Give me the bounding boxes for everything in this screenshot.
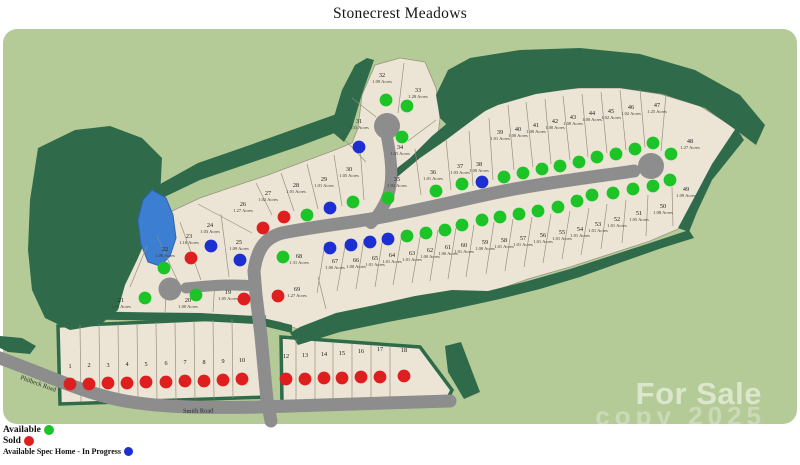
lot-status-dot <box>277 251 290 264</box>
lot-acres: 1.00 Acres <box>582 117 602 122</box>
lot-status-dot <box>664 174 677 187</box>
lot-number: 49 <box>683 186 689 193</box>
lot-status-dot <box>536 163 549 176</box>
lot-acres: 1.02 Acres <box>621 111 641 116</box>
lot-number: 34 <box>397 144 403 151</box>
lot-number: 44 <box>589 110 595 117</box>
lot-number: 29 <box>321 176 327 183</box>
lot-acres: 1.31 Acres <box>289 260 309 265</box>
lot-number: 55 <box>559 229 565 236</box>
lot-number: 66 <box>353 257 359 264</box>
lot-number: 4 <box>125 361 128 368</box>
lot-number: 67 <box>332 258 338 265</box>
lot-number: 18 <box>401 347 407 354</box>
watermark-partial: copy 2025 <box>500 403 800 424</box>
lot-acres: 1.01 Acres <box>588 228 608 233</box>
cul-de-sac-east <box>638 153 664 179</box>
lot-number: 32 <box>379 72 385 79</box>
lot-number: 62 <box>427 247 433 254</box>
lot-status-dot <box>190 289 203 302</box>
lot-number: 36 <box>430 169 436 176</box>
lot-status-dot <box>456 178 469 191</box>
lot-acres: 1.05 Acres <box>339 173 359 178</box>
lot-status-dot <box>396 131 409 144</box>
lot-number: 64 <box>389 252 395 259</box>
lot-status-dot <box>647 137 660 150</box>
lot-acres: 1.00 Acres <box>325 265 345 270</box>
watermark: For Sale copy 2025 <box>500 378 800 424</box>
lot-acres: 1.10 Acres <box>179 240 199 245</box>
legend: Available Sold Available Spec Home - In … <box>3 424 133 457</box>
lot-status-dot <box>498 171 511 184</box>
lot-acres: 1.05 Acres <box>629 217 649 222</box>
lot-number: 13 <box>302 352 308 359</box>
lot-acres: 1.00 Acres <box>526 129 546 134</box>
lot-status-dot <box>257 222 270 235</box>
lot-acres: 1.01 Acres <box>365 262 385 267</box>
legend-dot-sold <box>24 436 34 446</box>
lot-status-dot <box>401 230 414 243</box>
lot-status-dot <box>532 205 545 218</box>
lot-number: 8 <box>202 359 205 366</box>
lot-number: 27 <box>265 190 271 197</box>
lot-status-dot <box>102 377 115 390</box>
lot-status-dot <box>591 151 604 164</box>
lot-status-dot <box>299 373 312 386</box>
lot-number: 61 <box>445 244 451 251</box>
lot-acres: 1.00 Acres <box>438 251 458 256</box>
lot-number: 16 <box>358 348 364 355</box>
lot-status-dot <box>234 254 247 267</box>
lot-number: 46 <box>628 104 634 111</box>
lot-acres: 1.25 Acres <box>647 109 667 114</box>
lot-status-dot <box>198 375 211 388</box>
lot-status-dot <box>345 239 358 252</box>
lot-number: 42 <box>552 118 558 125</box>
lot-number: 57 <box>520 235 526 242</box>
lot-acres: 1.28 Acres <box>408 94 428 99</box>
lot-number: 31 <box>356 118 362 125</box>
lot-status-dot <box>324 242 337 255</box>
lot-number: 53 <box>595 221 601 228</box>
lot-number: 2 <box>87 362 90 369</box>
legend-label-spec: Available Spec Home - In Progress <box>3 447 121 456</box>
lot-number: 30 <box>346 166 352 173</box>
lot-acres: 1.01 Acres <box>533 239 553 244</box>
lot-status-dot <box>571 195 584 208</box>
lot-status-dot <box>238 293 251 306</box>
lot-number: 50 <box>660 203 666 210</box>
lot-status-dot <box>83 378 96 391</box>
lot-number: 68 <box>296 253 302 260</box>
lot-status-dot <box>476 176 489 189</box>
lot-acres: 1.09 Acres <box>229 246 249 251</box>
lot-acres: 1.05 Acres <box>218 296 238 301</box>
lot-acres: 1.27 Acres <box>680 145 700 150</box>
lot-acres: 1.00 Acres <box>508 133 528 138</box>
lot-number: 63 <box>409 250 415 257</box>
lot-status-dot <box>456 219 469 232</box>
lot-acres: 1.10 Acres <box>111 304 131 309</box>
lot-number: 19 <box>225 289 231 296</box>
lot-status-dot <box>347 196 360 209</box>
lot-acres: 1.01 Acres <box>286 189 306 194</box>
lot-number: 23 <box>186 233 192 240</box>
road-label-smith: Smith Road <box>183 407 214 415</box>
lot-status-dot <box>185 252 198 265</box>
lot-number: 69 <box>294 286 300 293</box>
lot-number: 52 <box>614 216 620 223</box>
lot-number: 9 <box>221 358 224 365</box>
lot-number: 35 <box>394 176 400 183</box>
lot-acres: 1.27 Acres <box>233 208 253 213</box>
legend-label-sold: Sold <box>3 436 21 446</box>
lot-status-dot <box>272 290 285 303</box>
lot-acres: 1.33 Acres <box>349 125 369 130</box>
lot-status-dot <box>430 185 443 198</box>
lot-status-dot <box>647 180 660 193</box>
lot-status-dot <box>364 236 377 249</box>
lot-status-dot <box>607 187 620 200</box>
lot-status-dot <box>324 202 337 215</box>
lot-number: 14 <box>321 351 327 358</box>
lot-acres: 1.03 Acres <box>450 170 470 175</box>
lot-number: 26 <box>240 201 246 208</box>
lot-acres: 1.01 Acres <box>490 136 510 141</box>
lot-status-dot <box>179 375 192 388</box>
lot-number: 59 <box>482 239 488 246</box>
lot-number: 22 <box>162 246 168 253</box>
legend-dot-spec <box>124 447 133 456</box>
lot-number: 38 <box>476 161 482 168</box>
lot-status-dot <box>301 209 314 222</box>
lot-status-dot <box>627 183 640 196</box>
lot-number: 47 <box>654 102 660 109</box>
lot-acres: 1.01 Acres <box>607 223 627 228</box>
lot-number: 25 <box>236 239 242 246</box>
lot-number: 10 <box>239 357 245 364</box>
lot-status-dot <box>353 141 366 154</box>
lot-status-dot <box>380 94 393 107</box>
lot-status-dot <box>355 371 368 384</box>
road-west-branch <box>186 285 254 288</box>
lot-status-dot <box>552 201 565 214</box>
plat-map-flyer: Stonecrest Meadows <box>0 0 800 465</box>
lot-acres: 1.00 Acres <box>469 168 489 173</box>
lot-number: 54 <box>577 226 583 233</box>
lot-status-dot <box>64 378 77 391</box>
lot-number: 28 <box>293 182 299 189</box>
legend-item-sold: Sold <box>3 435 133 446</box>
lot-number: 15 <box>339 350 345 357</box>
lot-status-dot <box>517 167 530 180</box>
lot-status-dot <box>278 211 291 224</box>
lot-number: 39 <box>497 129 503 136</box>
lot-number: 58 <box>501 237 507 244</box>
lot-status-dot <box>140 376 153 389</box>
legend-dot-available <box>44 425 54 435</box>
lot-number: 24 <box>207 222 213 229</box>
lot-number: 7 <box>183 359 186 366</box>
lot-status-dot <box>476 214 489 227</box>
lot-number: 5 <box>144 361 147 368</box>
lot-acres: 1.06 Acres <box>155 253 175 258</box>
lot-acres: 1.00 Acres <box>563 121 583 126</box>
lot-status-dot <box>336 372 349 385</box>
lot-status-dot <box>610 148 623 161</box>
lot-number: 41 <box>533 122 539 129</box>
lot-status-dot <box>573 156 586 169</box>
lot-number: 43 <box>570 114 576 121</box>
lot-acres: 1.01 Acres <box>314 183 334 188</box>
lot-acres: 1.01 Acres <box>402 257 422 262</box>
lot-status-dot <box>439 224 452 237</box>
lot-status-dot <box>665 148 678 161</box>
lot-acres: 1.01 Acres <box>423 176 443 181</box>
lot-status-dot <box>401 100 414 113</box>
lot-number: 37 <box>457 163 463 170</box>
lot-acres: 1.09 Acres <box>676 193 696 198</box>
lot-acres: 1.03 Acres <box>200 229 220 234</box>
lot-acres: 1.01 Acres <box>570 233 590 238</box>
lot-status-dot <box>629 143 642 156</box>
lot-acres: 1.02 Acres <box>258 197 278 202</box>
lot-status-dot <box>554 160 567 173</box>
lot-number: 1 <box>68 363 71 370</box>
lot-number: 65 <box>372 255 378 262</box>
lot-status-dot <box>382 192 395 205</box>
lot-acres: 1.09 Acres <box>372 79 392 84</box>
cul-de-sac-west <box>159 278 182 301</box>
lot-status-dot <box>513 208 526 221</box>
lot-acres: 1.02 Acres <box>387 183 407 188</box>
lot-number: 17 <box>377 346 383 353</box>
lot-number: 56 <box>540 232 546 239</box>
legend-item-spec: Available Spec Home - In Progress <box>3 446 133 457</box>
lot-status-dot <box>121 377 134 390</box>
lot-number: 20 <box>185 297 191 304</box>
lot-number: 33 <box>415 87 421 94</box>
lot-acres: 1.00 Acres <box>178 304 198 309</box>
lot-acres: 1.01 Acres <box>552 236 572 241</box>
lot-acres: 1.02 Acres <box>601 115 621 120</box>
lot-number: 60 <box>461 242 467 249</box>
lot-status-dot <box>139 292 152 305</box>
lot-acres: 1.05 Acres <box>390 151 410 156</box>
lot-acres: 1.00 Acres <box>346 264 366 269</box>
lot-acres: 1.00 Acres <box>420 254 440 259</box>
lot-number: 12 <box>283 353 289 360</box>
lot-status-dot <box>158 262 171 275</box>
lot-number: 51 <box>636 210 642 217</box>
lot-acres: 1.08 Acres <box>653 210 673 215</box>
lot-number: 6 <box>164 360 167 367</box>
lot-status-dot <box>586 189 599 202</box>
lot-status-dot <box>318 372 331 385</box>
lot-acres: 1.01 Acres <box>382 259 402 264</box>
lot-acres: 1.27 Acres <box>287 293 307 298</box>
lot-acres: 1.00 Acres <box>475 246 495 251</box>
lot-status-dot <box>494 211 507 224</box>
lot-status-dot <box>160 376 173 389</box>
lot-status-dot <box>382 233 395 246</box>
lot-status-dot <box>398 370 411 383</box>
lot-number: 40 <box>515 126 521 133</box>
lot-acres: 1.00 Acres <box>545 125 565 130</box>
lot-status-dot <box>217 374 230 387</box>
legend-label-available: Available <box>3 425 41 435</box>
lot-number: 48 <box>687 138 693 145</box>
lot-status-dot <box>280 373 293 386</box>
lot-number: 3 <box>106 362 109 369</box>
lot-acres: 1.01 Acres <box>494 244 514 249</box>
legend-item-available: Available <box>3 424 133 435</box>
lot-number: 21 <box>118 297 124 304</box>
lot-acres: 1.01 Acres <box>513 242 533 247</box>
lot-status-dot <box>205 240 218 253</box>
lot-status-dot <box>236 373 249 386</box>
lot-status-dot <box>374 371 387 384</box>
lot-status-dot <box>420 227 433 240</box>
lot-number: 45 <box>608 108 614 115</box>
